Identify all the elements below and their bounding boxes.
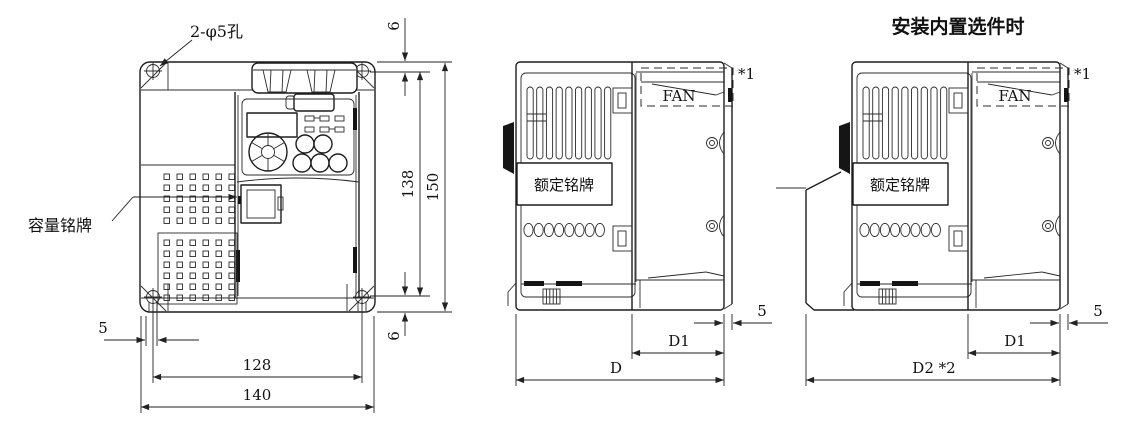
dimension-drawing: 2-φ5孔 容量铭牌 6 138 150 6	[0, 0, 1125, 424]
connector-cover	[286, 94, 334, 111]
side-dimensions: 5 D1 D	[516, 302, 772, 386]
dim-rear-offset: 5	[757, 302, 767, 320]
dim-rear-offset: 5	[1093, 302, 1103, 320]
panel-indicators	[305, 116, 344, 132]
capacity-nameplate-label: 容量铭牌	[28, 216, 92, 235]
fan-label: FAN	[662, 87, 695, 105]
dim-total-height: 150	[424, 173, 442, 202]
vent-grid	[164, 174, 235, 301]
dim-panel-depth: D1	[668, 332, 690, 350]
rating-nameplate-label: 额定铭牌	[534, 176, 594, 194]
dim-top-offset: 6	[385, 21, 403, 31]
panel-buttons[interactable]	[293, 135, 347, 172]
mounting-hole-top-left	[144, 62, 162, 80]
option-dimensions: 5 D1 D2 *2	[806, 302, 1108, 386]
dim-hole-pitch-vertical: 138	[399, 170, 417, 199]
dim-edge-offset: 5	[98, 319, 108, 337]
dim-total-width: 140	[243, 386, 272, 404]
top-handle	[252, 63, 357, 93]
holes-label: 2-φ5孔	[190, 22, 243, 41]
setting-dial[interactable]	[249, 133, 287, 171]
front-view: 2-φ5孔 容量铭牌 6 138 150 6	[28, 18, 452, 413]
rating-nameplate-label: 额定铭牌	[870, 176, 930, 194]
drawing-canvas: 2-φ5孔 容量铭牌 6 138 150 6	[0, 0, 1125, 424]
capacity-nameplate-door	[238, 185, 283, 223]
side-view: 额定铭牌 FAN *1 5 D1 D	[503, 62, 772, 386]
option-extension	[776, 172, 854, 310]
dim-total-depth: D	[610, 359, 622, 377]
note-1: *1	[738, 65, 755, 83]
dim-panel-depth: D1	[1004, 332, 1026, 350]
option-view: 安装内置选件时 额定铭牌 FAN *1 5 D1 D2 *2	[776, 15, 1108, 386]
option-view-title: 安装内置选件时	[891, 15, 1024, 38]
note-1: *1	[1074, 65, 1091, 83]
dim-hole-pitch-horizontal: 128	[243, 356, 272, 374]
dim-bottom-offset: 6	[385, 331, 403, 341]
fan-label: FAN	[998, 87, 1031, 105]
capacity-leader	[112, 197, 237, 221]
dim-total-depth: D2 *2	[912, 359, 955, 377]
